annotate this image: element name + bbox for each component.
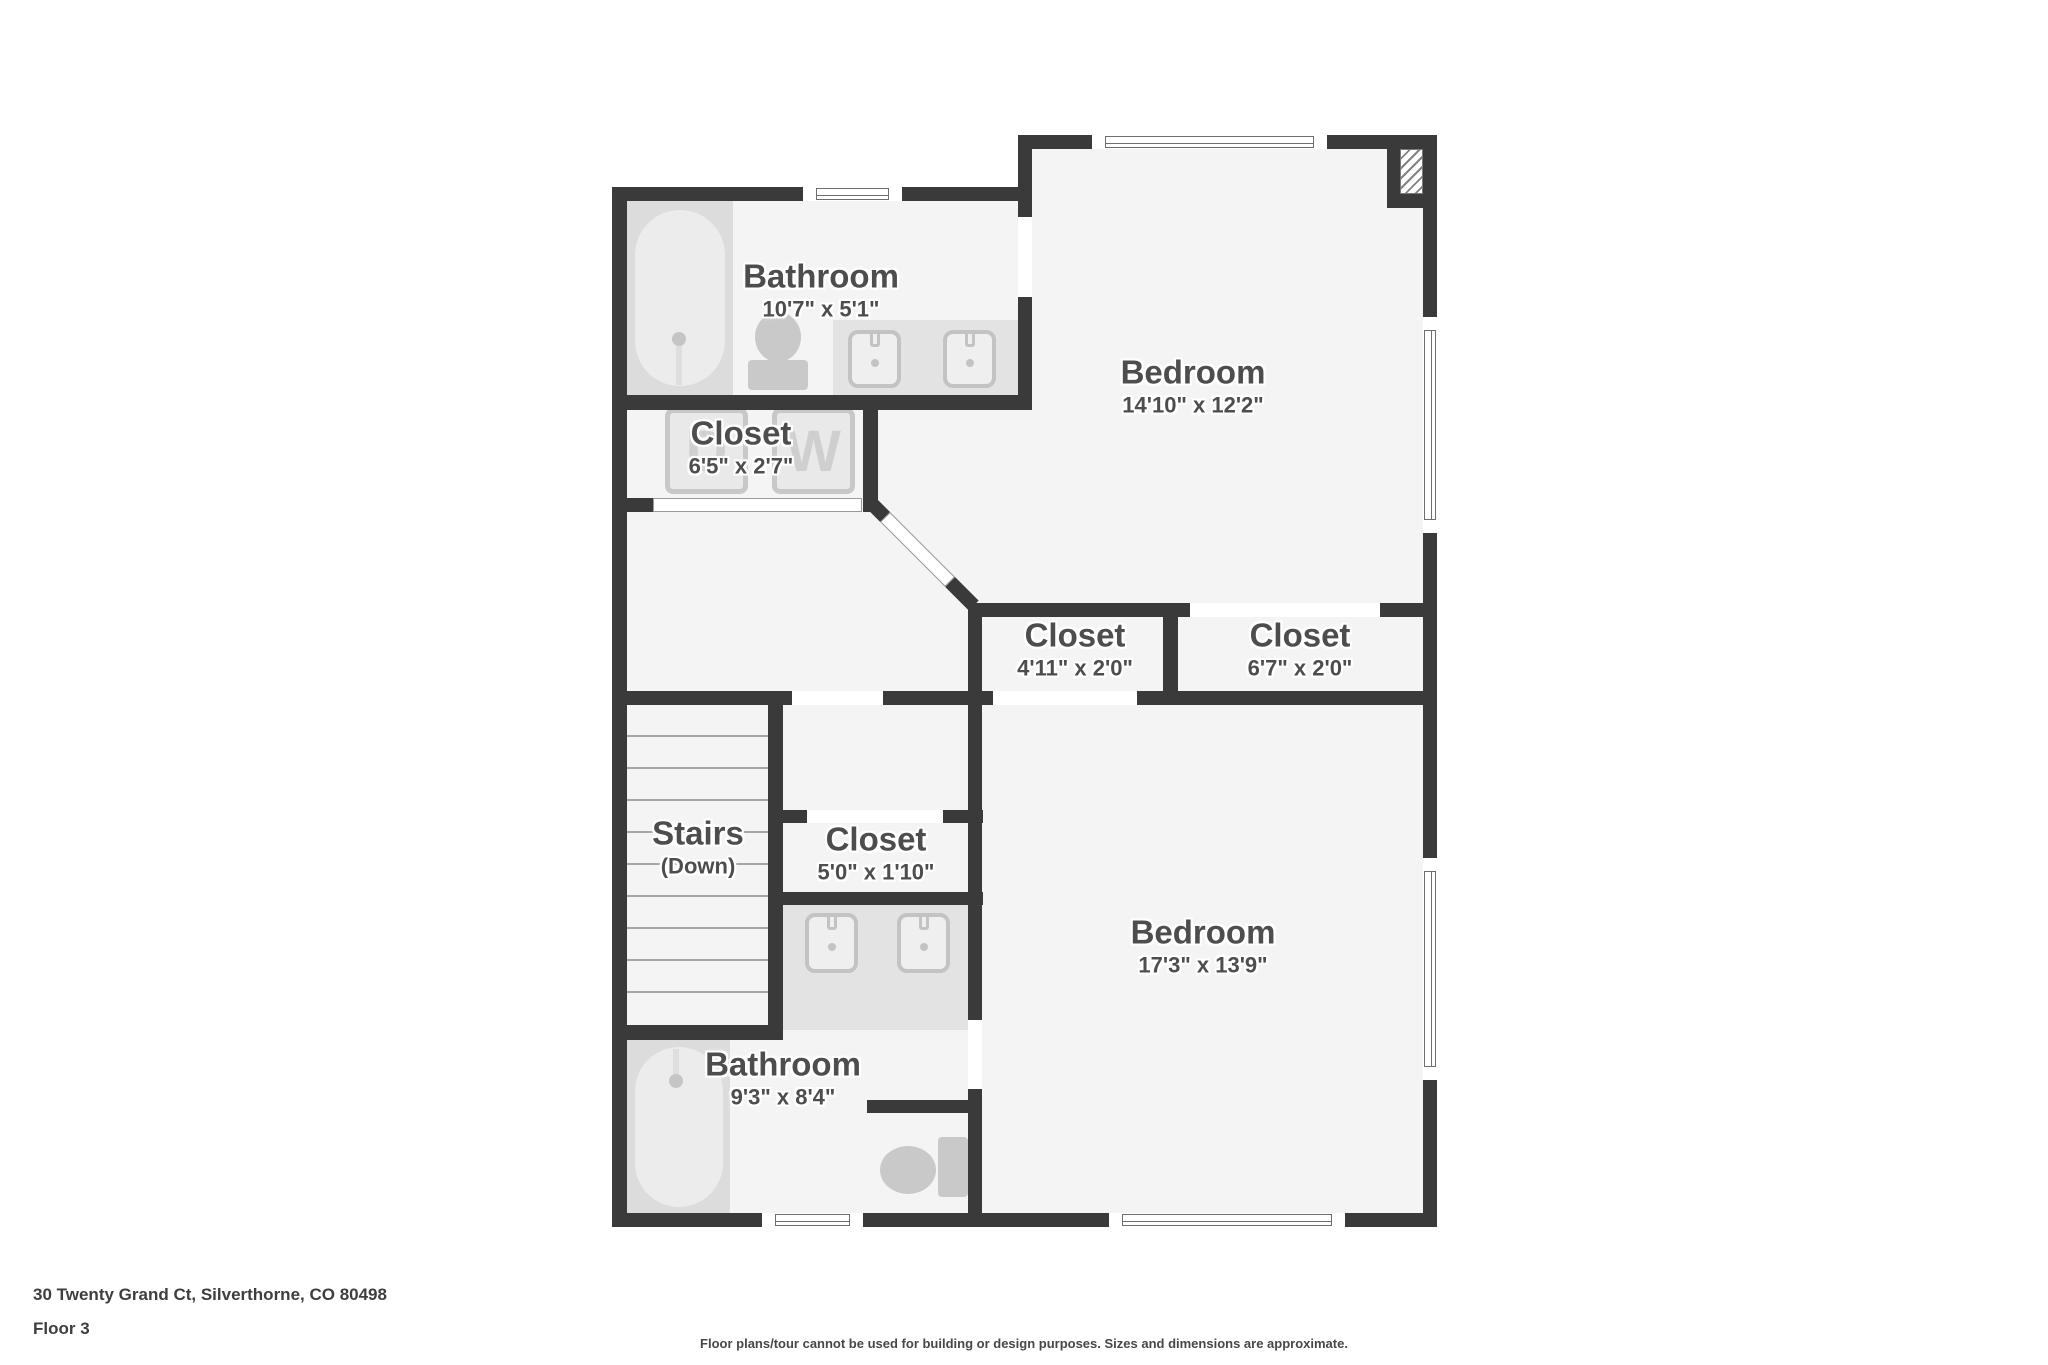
room-dims: 4'11" x 2'0" (1017, 653, 1133, 683)
room-name: Bedroom (1131, 914, 1276, 950)
room-label-bathroom-top: Bathroom 10'7" x 5'1" (743, 258, 899, 323)
door-opening (1018, 217, 1032, 297)
window (803, 187, 902, 201)
sink-icon (897, 913, 950, 973)
sink-drain (966, 359, 974, 367)
toilet-tank (748, 360, 808, 390)
floor-plan-canvas: D W (0, 0, 2048, 1365)
room-dims: 5'0" x 1'10" (818, 857, 935, 887)
room-label-bedroom-bottom: Bedroom 17'3" x 13'9" (1131, 914, 1276, 979)
window (1109, 1213, 1345, 1227)
bathtub-drain (676, 346, 682, 385)
washer-letter: W (786, 418, 841, 485)
window (1423, 317, 1437, 533)
wall (768, 892, 983, 905)
room-dims: 14'10" x 12'2" (1122, 390, 1263, 420)
room-dims: 17'3" x 13'9" (1138, 950, 1267, 980)
window (1092, 135, 1327, 149)
room-label-closet-3: Closet 5'0" x 1'10" (818, 821, 935, 886)
room-label-closet-wd: Closet 6'5" x 2'7" (689, 415, 794, 480)
room-dims: 10'7" x 5'1" (763, 294, 880, 324)
room-name: Closet (691, 415, 792, 451)
wall-chimney (1387, 194, 1437, 208)
room-label-closet-1: Closet 4'11" x 2'0" (1017, 617, 1133, 682)
wall (612, 1025, 783, 1040)
chimney-hatch (1400, 149, 1423, 194)
wall (612, 395, 1032, 410)
sink-icon (943, 330, 996, 388)
sink-drain (871, 359, 879, 367)
wall (1163, 603, 1178, 705)
room-name: Stairs (652, 815, 744, 851)
door-opening (993, 691, 1137, 705)
window (762, 1213, 863, 1227)
sink-faucet (965, 331, 975, 347)
window-glass (1424, 330, 1436, 520)
window-glass (1105, 136, 1314, 148)
room-label-closet-2: Closet 6'7" x 2'0" (1248, 617, 1353, 682)
disclaimer-text: Floor plans/tour cannot be used for buil… (0, 1336, 2048, 1351)
room-dims: 9'3" x 8'4" (731, 1082, 836, 1112)
sink-faucet (919, 914, 929, 930)
toilet-icon (880, 1146, 936, 1194)
wall (867, 1100, 982, 1113)
sink-drain (920, 943, 928, 951)
sliding-door-opening (653, 498, 862, 512)
door-opening (792, 691, 883, 705)
bathtub-faucet-icon (672, 332, 686, 346)
door-opening (968, 1020, 982, 1089)
window-glass (1424, 871, 1436, 1067)
wall (612, 187, 627, 1227)
wall (768, 691, 783, 1040)
room-name: Bathroom (743, 258, 899, 294)
room-label-stairs: Stairs (Down) (652, 815, 744, 880)
room-name: Bathroom (705, 1046, 861, 1082)
window-glass (1122, 1214, 1332, 1226)
room-label-bedroom-top: Bedroom 14'10" x 12'2" (1121, 354, 1266, 419)
room-name: Bedroom (1121, 354, 1266, 390)
room-name: Closet (826, 821, 927, 857)
sink-faucet (827, 914, 837, 930)
toilet-tank (938, 1137, 968, 1197)
address-text: 30 Twenty Grand Ct, Silverthorne, CO 804… (33, 1285, 387, 1305)
room-name: Closet (1025, 617, 1126, 653)
window (1423, 858, 1437, 1080)
door-opening (1190, 603, 1380, 617)
wall (612, 498, 653, 512)
sink-icon (848, 330, 901, 388)
wall (863, 410, 878, 512)
room-label-bathroom-bottom: Bathroom 9'3" x 8'4" (705, 1046, 861, 1111)
bathtub-faucet-icon (669, 1074, 683, 1088)
room-dims: 6'5" x 2'7" (689, 451, 794, 481)
room-dims: (Down) (661, 851, 736, 881)
bathtub-drain (673, 1049, 679, 1076)
window-glass (775, 1214, 850, 1226)
sink-drain (828, 943, 836, 951)
window-glass (816, 188, 889, 200)
room-name: Closet (1250, 617, 1351, 653)
room-dims: 6'7" x 2'0" (1248, 653, 1353, 683)
sink-faucet (870, 331, 880, 347)
sink-icon (805, 913, 858, 973)
